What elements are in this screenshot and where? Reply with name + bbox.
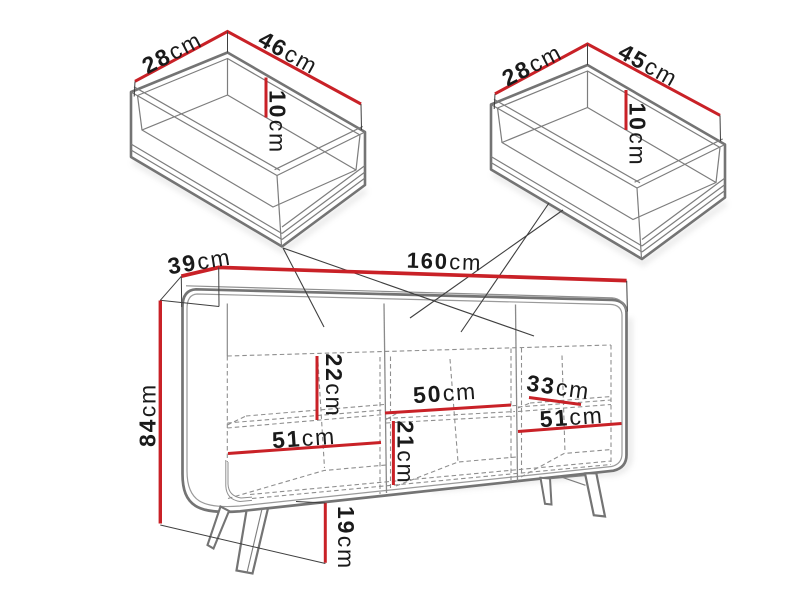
svg-text:51cm: 51cm — [539, 402, 605, 432]
svg-text:84cm: 84cm — [135, 383, 161, 447]
svg-text:21cm: 21cm — [392, 421, 418, 485]
svg-text:160cm: 160cm — [406, 248, 482, 276]
svg-text:22cm: 22cm — [321, 354, 347, 418]
svg-text:50cm: 50cm — [412, 378, 478, 408]
svg-text:10cm: 10cm — [625, 103, 651, 167]
svg-text:10cm: 10cm — [265, 90, 291, 154]
svg-text:51cm: 51cm — [271, 423, 337, 453]
svg-text:19cm: 19cm — [333, 506, 359, 570]
